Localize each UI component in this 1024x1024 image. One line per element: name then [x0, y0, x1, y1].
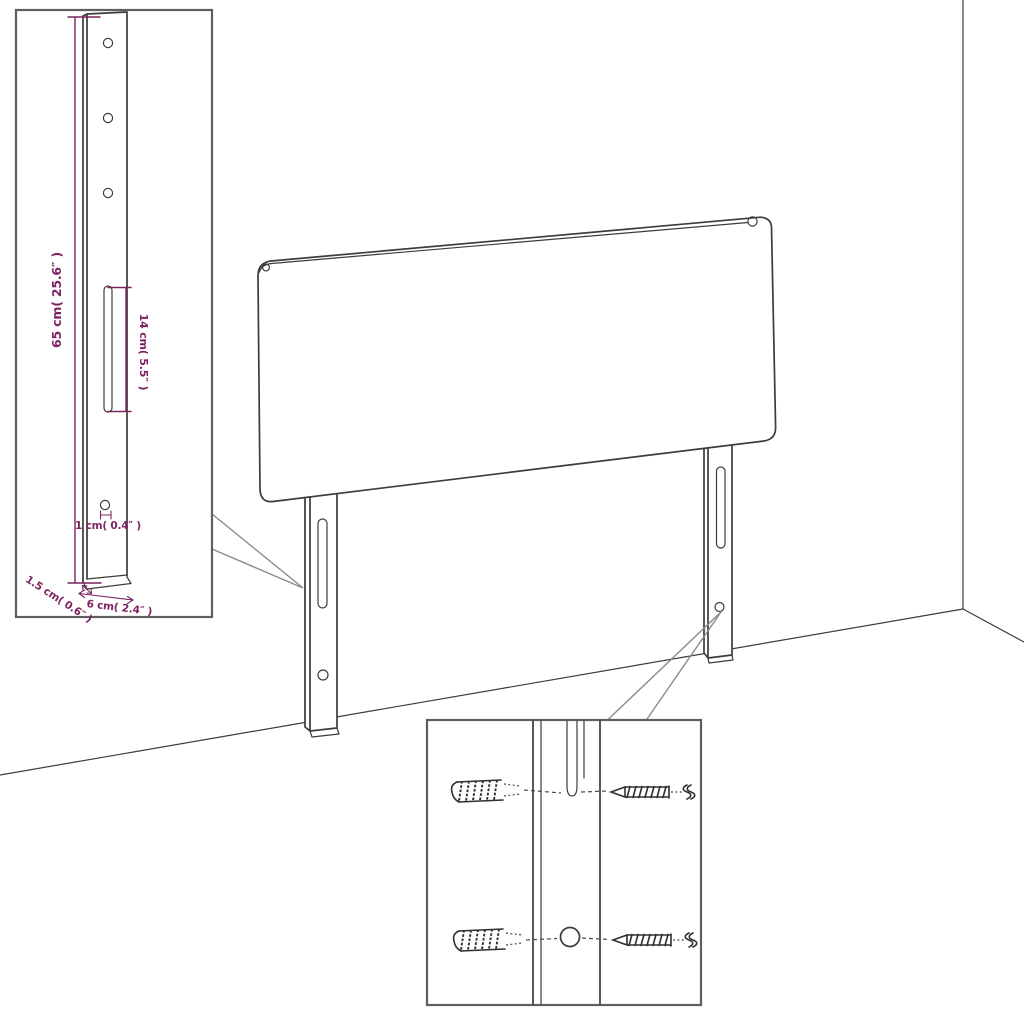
hardware-inset-border [427, 720, 701, 1005]
floor-line-right [963, 609, 1024, 642]
callout-left-leg [212, 514, 303, 588]
callout-right-hole [607, 612, 721, 721]
dim-label-slot-length: 14 cm( 5.5″ ) [137, 314, 150, 391]
diagram-stage: 65 cm( 25.6″ ) 14 cm( 5.5″ ) 1 cm( 0.4″ … [0, 0, 1024, 1024]
hardware-inset [427, 720, 701, 1005]
dim-label-bracket-height: 65 cm( 25.6″ ) [49, 252, 64, 348]
detail-inset: 65 cm( 25.6″ ) 14 cm( 5.5″ ) 1 cm( 0.4″ … [16, 10, 212, 625]
left-leg [305, 491, 339, 737]
dim-label-hole-diameter: 1 cm( 0.4″ ) [75, 520, 141, 532]
headboard-diagram: 65 cm( 25.6″ ) 14 cm( 5.5″ ) 1 cm( 0.4″ … [0, 0, 1024, 1024]
headboard-panel [258, 217, 776, 502]
